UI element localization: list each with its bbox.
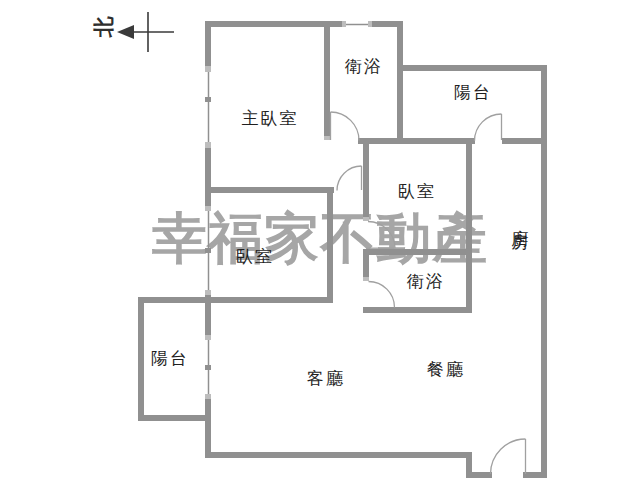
door-arc [368, 222, 395, 249]
door-arc [331, 112, 360, 141]
door-arc [337, 166, 362, 191]
north-arrow [117, 12, 174, 52]
wall-segment [205, 187, 334, 193]
wall-segment [363, 307, 472, 313]
room-label-bathroom-lower: 衛浴 [407, 270, 445, 293]
door-arc [491, 439, 526, 474]
wall-cap [205, 142, 211, 148]
wall-segment [205, 148, 211, 210]
room-label-bedroom-right: 臥室 [398, 180, 436, 203]
wall-segment [466, 452, 472, 478]
wall-segment [205, 399, 211, 458]
door-arc [369, 282, 395, 308]
wall-segment [466, 138, 472, 313]
room-label-master-bedroom: 主臥室 [242, 107, 299, 130]
wall-segment [205, 21, 211, 66]
wall-cap [205, 290, 211, 295]
wall-segment [363, 249, 369, 281]
wall-caps-layer [205, 21, 372, 399]
wall-cap [205, 66, 211, 72]
wall-segment [363, 138, 369, 221]
floor-plan: 幸福家不動產 [0, 0, 640, 480]
room-label-balcony-upper: 陽台 [454, 81, 492, 104]
room-label-bathroom-upper: 衛浴 [345, 55, 383, 78]
north-label: 北 [90, 17, 118, 38]
windows-layer [209, 25, 369, 395]
wall-segment [502, 138, 547, 144]
room-label-kitchen: 廚房 [510, 216, 533, 222]
plan-linework [0, 0, 640, 480]
wall-segment [397, 21, 403, 140]
door-arc [475, 114, 502, 141]
wall-cap [324, 136, 330, 140]
wall-cap [205, 206, 211, 211]
wall-segment [138, 415, 210, 421]
wall-cap [205, 335, 211, 340]
wall-cap [363, 277, 369, 281]
wall-segment [327, 193, 333, 303]
north-arrow-head [117, 25, 134, 39]
wall-segment [541, 65, 547, 478]
wall-segment [138, 297, 144, 421]
wall-segment [205, 21, 342, 27]
wall-cap [205, 394, 211, 399]
wall-segment [363, 249, 472, 255]
wall-cap [368, 21, 372, 27]
wall-segment [205, 452, 472, 458]
wall-segment [324, 21, 330, 140]
doors-layer [331, 112, 526, 474]
wall-segment [397, 65, 547, 71]
wall-cap [342, 21, 346, 27]
wall-segment [358, 138, 475, 144]
wall-cap [363, 217, 369, 221]
room-label-living-room: 客廳 [307, 367, 345, 390]
wall-segment [138, 297, 333, 303]
wall-segment [205, 295, 211, 335]
room-label-bedroom-left: 臥室 [236, 245, 274, 268]
room-label-balcony-lower: 陽台 [151, 347, 189, 370]
room-label-dining-room: 餐廳 [427, 358, 465, 381]
